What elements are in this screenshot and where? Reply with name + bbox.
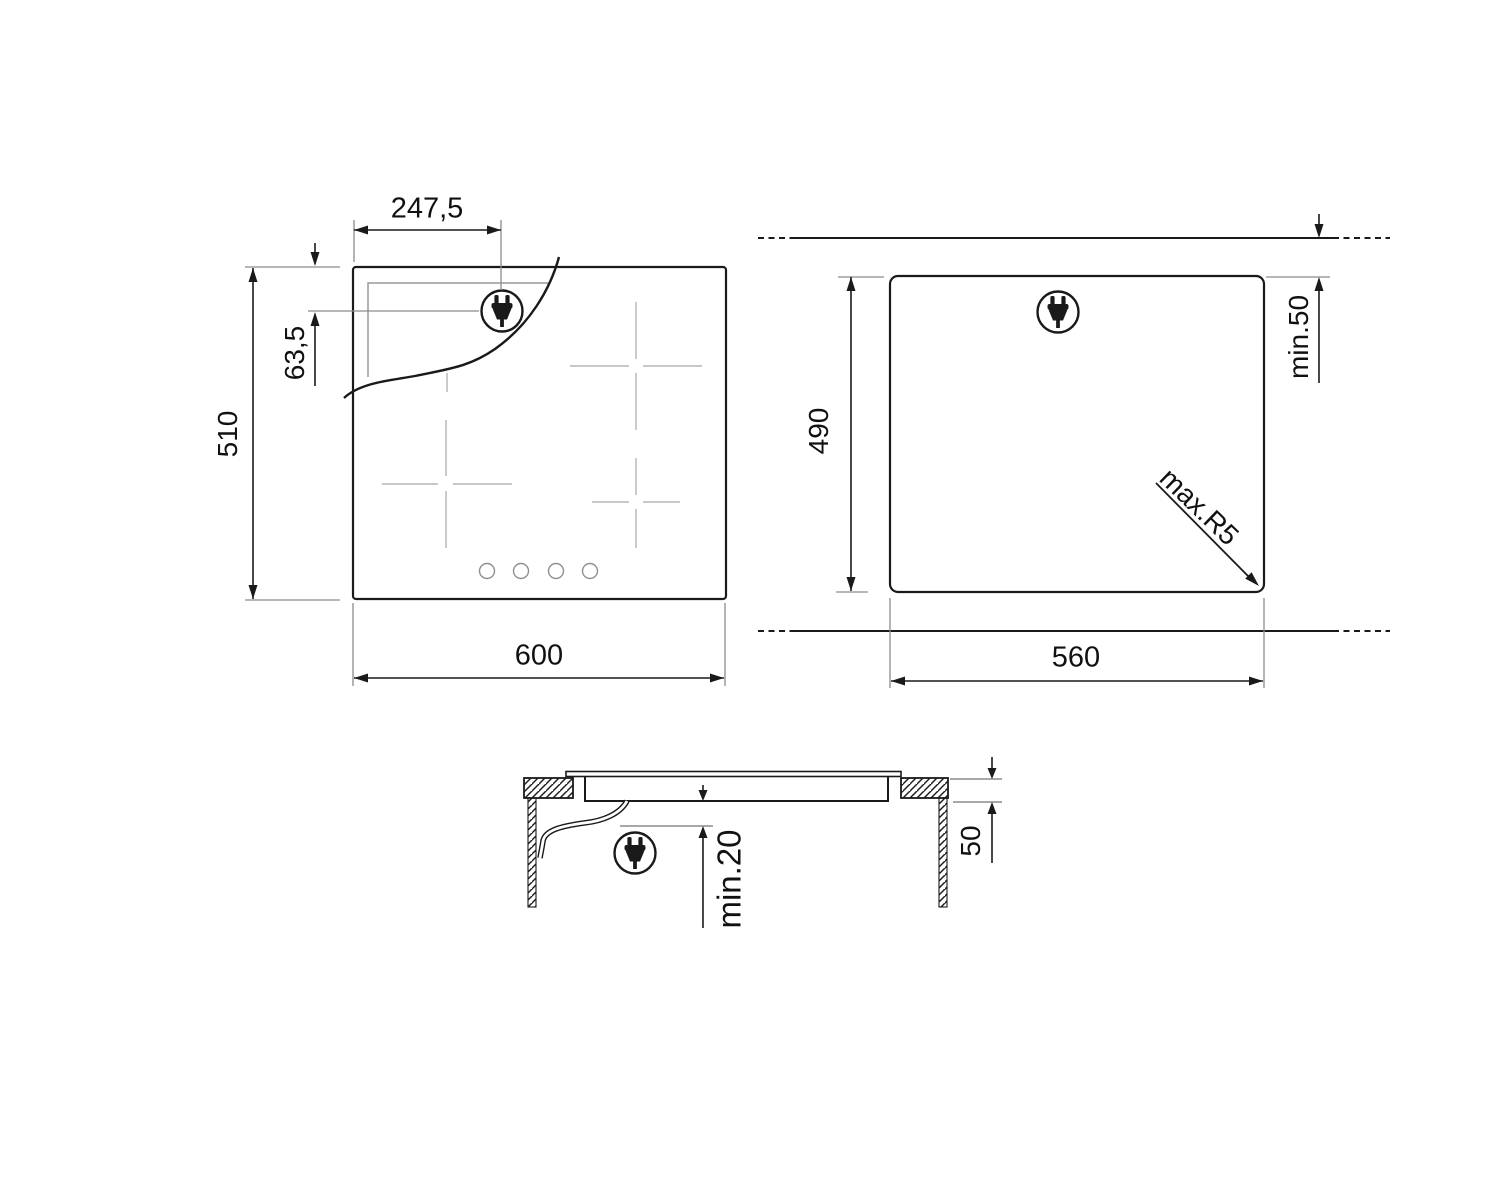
control-dot bbox=[514, 564, 529, 579]
installation-drawing: 247,5 63,5 510 600 490 min.50 560 max.R5… bbox=[0, 0, 1500, 1200]
control-dot bbox=[549, 564, 564, 579]
hob-outline bbox=[353, 267, 726, 599]
cutout-view bbox=[758, 214, 1390, 688]
hob-body-section bbox=[585, 776, 888, 801]
label-hob-depth: 510 bbox=[214, 411, 242, 458]
power-plug-icon bbox=[1038, 292, 1079, 333]
label-plug-offset-x: 247,5 bbox=[391, 195, 464, 224]
control-dot bbox=[583, 564, 598, 579]
cutout-outline bbox=[890, 276, 1264, 592]
power-plug-icon bbox=[482, 291, 523, 332]
worktop-left-section bbox=[524, 778, 573, 798]
label-recess-depth: 50 bbox=[957, 825, 985, 856]
label-hob-width: 600 bbox=[515, 642, 563, 671]
cabinet-side-right bbox=[939, 798, 947, 907]
cabinet-side-left bbox=[528, 798, 536, 907]
label-cutout-width: 560 bbox=[1052, 644, 1100, 673]
control-dot bbox=[480, 564, 495, 579]
section-view bbox=[524, 757, 1002, 928]
glass-top-section bbox=[566, 772, 901, 777]
label-rear-clearance: min.50 bbox=[1285, 295, 1313, 379]
power-plug-icon bbox=[615, 833, 656, 874]
label-plug-offset-y: 63,5 bbox=[281, 326, 309, 381]
drawing-linework bbox=[0, 0, 1500, 1200]
worktop-right-section bbox=[901, 778, 948, 798]
plan-view bbox=[245, 220, 726, 686]
label-cutout-depth: 490 bbox=[805, 408, 833, 455]
label-bottom-clearance: min.20 bbox=[713, 829, 746, 928]
